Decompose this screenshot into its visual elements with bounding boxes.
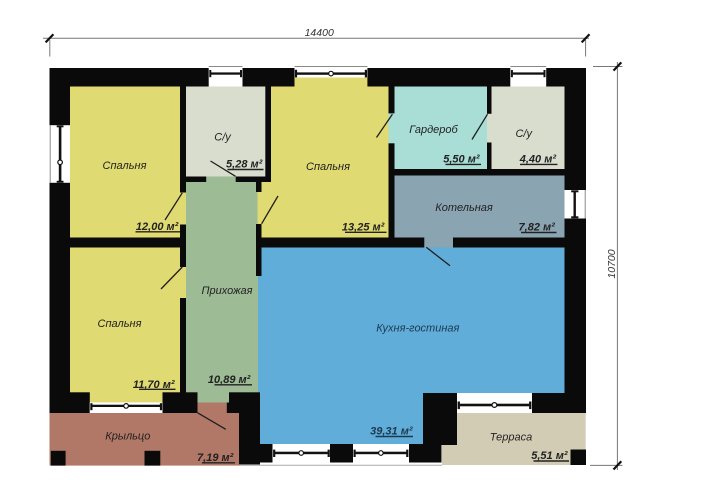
svg-text:С/у: С/у bbox=[515, 128, 533, 140]
svg-text:Спальня: Спальня bbox=[98, 318, 142, 330]
svg-text:Спальня: Спальня bbox=[306, 161, 350, 173]
svg-text:С/у: С/у bbox=[214, 132, 232, 144]
svg-text:Котельная: Котельная bbox=[435, 202, 493, 214]
svg-text:10700: 10700 bbox=[606, 249, 618, 278]
svg-text:10,89 м²: 10,89 м² bbox=[208, 374, 251, 386]
svg-text:39,31 м²: 39,31 м² bbox=[370, 426, 413, 438]
svg-text:Прихожая: Прихожая bbox=[201, 285, 252, 297]
svg-text:Крыльцо: Крыльцо bbox=[105, 431, 150, 443]
svg-text:Терраса: Терраса bbox=[490, 432, 532, 444]
svg-text:7,82 м²: 7,82 м² bbox=[519, 222, 556, 234]
svg-text:5,50 м²: 5,50 м² bbox=[443, 153, 480, 165]
svg-text:4,40 м²: 4,40 м² bbox=[519, 153, 557, 165]
svg-text:Кухня-гостиная: Кухня-гостиная bbox=[376, 323, 459, 335]
svg-text:Спальня: Спальня bbox=[103, 160, 147, 172]
svg-text:5,28 м²: 5,28 м² bbox=[226, 159, 263, 171]
svg-text:14400: 14400 bbox=[305, 27, 334, 39]
svg-text:5,51 м²: 5,51 м² bbox=[531, 450, 568, 462]
svg-text:12,00 м²: 12,00 м² bbox=[136, 221, 179, 233]
svg-text:Гардероб: Гардероб bbox=[409, 124, 458, 136]
